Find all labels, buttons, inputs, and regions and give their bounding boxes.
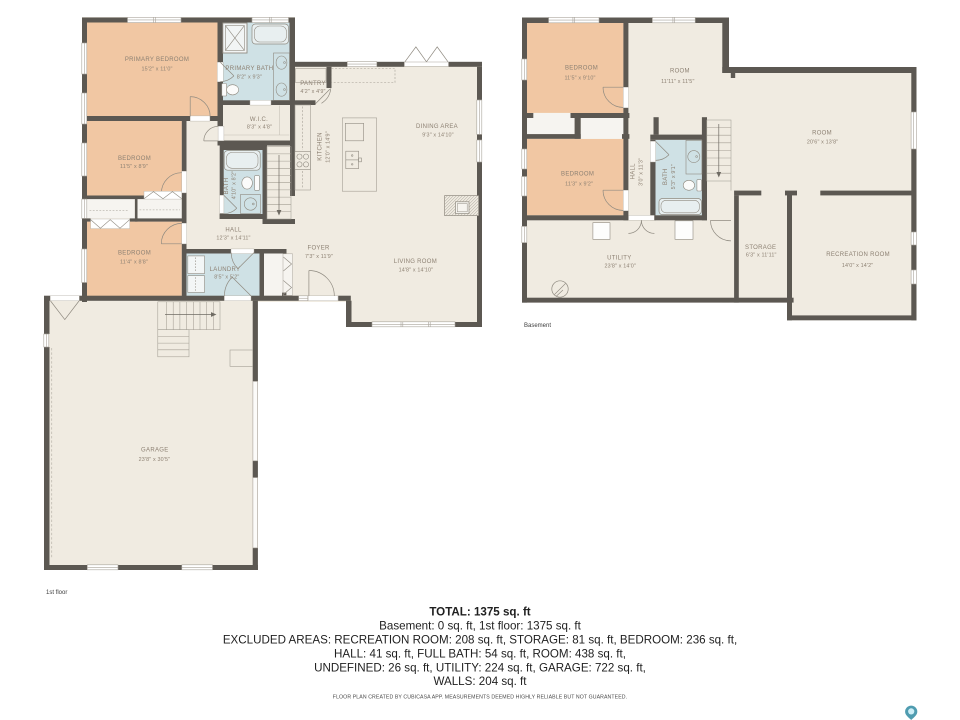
svg-text:4'10" x 8'2": 4'10" x 8'2" [232, 171, 238, 199]
svg-text:PRIMARY BATH: PRIMARY BATH [225, 66, 273, 72]
svg-text:WALLS: 204 sq. ft: WALLS: 204 sq. ft [433, 675, 527, 688]
svg-text:BEDROOM: BEDROOM [118, 251, 151, 257]
svg-text:3'0" x 11'3": 3'0" x 11'3" [638, 158, 644, 186]
svg-text:HALL: HALL [225, 228, 242, 234]
svg-text:STORAGE: STORAGE [745, 245, 776, 251]
svg-text:EXCLUDED AREAS: RECREATION ROO: EXCLUDED AREAS: RECREATION ROOM: 208 sq.… [223, 634, 737, 647]
svg-text:FOYER: FOYER [308, 246, 331, 252]
svg-text:15'2" x 11'0": 15'2" x 11'0" [141, 67, 172, 73]
svg-text:UTILITY: UTILITY [607, 255, 631, 261]
svg-text:BEDROOM: BEDROOM [118, 156, 151, 162]
svg-text:8'5" x 5'2": 8'5" x 5'2" [214, 275, 239, 281]
svg-text:Basement: 0 sq. ft, 1st floor:: Basement: 0 sq. ft, 1st floor: 1375 sq. … [379, 620, 581, 633]
svg-text:HALL: 41 sq. ft, FULL BATH: 54: HALL: 41 sq. ft, FULL BATH: 54 sq. ft, R… [334, 648, 626, 661]
svg-text:PRIMARY BEDROOM: PRIMARY BEDROOM [125, 57, 189, 63]
svg-text:20'6" x 13'8": 20'6" x 13'8" [807, 140, 839, 146]
svg-text:8'3" x 4'8": 8'3" x 4'8" [247, 125, 272, 131]
svg-text:9'3" x 14'10": 9'3" x 14'10" [422, 133, 454, 139]
svg-text:6'3" x 11'11": 6'3" x 11'11" [746, 253, 777, 259]
svg-text:LIVING ROOM: LIVING ROOM [394, 259, 437, 265]
svg-text:1st floor: 1st floor [46, 590, 67, 596]
svg-text:PANTRY: PANTRY [300, 81, 326, 87]
svg-text:UNDEFINED: 26 sq. ft, UTILITY:: UNDEFINED: 26 sq. ft, UTILITY: 224 sq. f… [314, 662, 646, 675]
svg-text:TOTAL: 1375 sq. ft: TOTAL: 1375 sq. ft [429, 606, 530, 619]
svg-text:12'3" x 14'11": 12'3" x 14'11" [216, 236, 250, 242]
svg-text:14'8" x 14'10": 14'8" x 14'10" [399, 268, 434, 274]
svg-text:ROOM: ROOM [812, 131, 832, 137]
svg-text:8'2" x 9'3": 8'2" x 9'3" [237, 74, 262, 80]
svg-text:LAUNDRY: LAUNDRY [210, 267, 241, 273]
svg-text:HALL: HALL [631, 163, 637, 180]
svg-text:DINING AREA: DINING AREA [416, 124, 458, 130]
svg-text:7'3" x 11'9": 7'3" x 11'9" [305, 254, 333, 260]
svg-text:Basement: Basement [524, 323, 551, 329]
svg-text:BATH: BATH [663, 168, 669, 185]
svg-text:RECREATION ROOM: RECREATION ROOM [826, 252, 890, 258]
svg-text:BATH: BATH [224, 178, 230, 195]
svg-text:12'0" x 14'9": 12'0" x 14'9" [326, 131, 332, 163]
svg-text:5'3" x 9'1": 5'3" x 9'1" [671, 164, 677, 189]
svg-text:14'0" x 14'2": 14'0" x 14'2" [842, 263, 874, 269]
svg-text:11'11" x 11'5": 11'11" x 11'5" [661, 79, 694, 85]
svg-text:W.I.C.: W.I.C. [250, 117, 268, 123]
svg-text:BEDROOM: BEDROOM [565, 66, 598, 72]
svg-text:23'8" x 30'5": 23'8" x 30'5" [139, 457, 171, 463]
svg-text:BEDROOM: BEDROOM [561, 171, 594, 177]
svg-text:11'4" x 8'8": 11'4" x 8'8" [120, 260, 148, 266]
svg-text:GARAGE: GARAGE [141, 448, 168, 454]
svg-text:ROOM: ROOM [670, 69, 690, 75]
svg-text:11'3" x 9'2": 11'3" x 9'2" [565, 182, 593, 188]
svg-text:FLOOR PLAN CREATED BY CUBICASA: FLOOR PLAN CREATED BY CUBICASA APP. MEAS… [333, 695, 627, 701]
svg-text:11'5" x 8'9": 11'5" x 8'9" [120, 164, 148, 170]
svg-text:4'2" x 4'9": 4'2" x 4'9" [300, 89, 325, 95]
svg-text:11'5" x 9'10": 11'5" x 9'10" [564, 76, 595, 82]
svg-text:23'8" x 14'0": 23'8" x 14'0" [604, 263, 636, 269]
svg-text:KITCHEN: KITCHEN [318, 132, 324, 160]
